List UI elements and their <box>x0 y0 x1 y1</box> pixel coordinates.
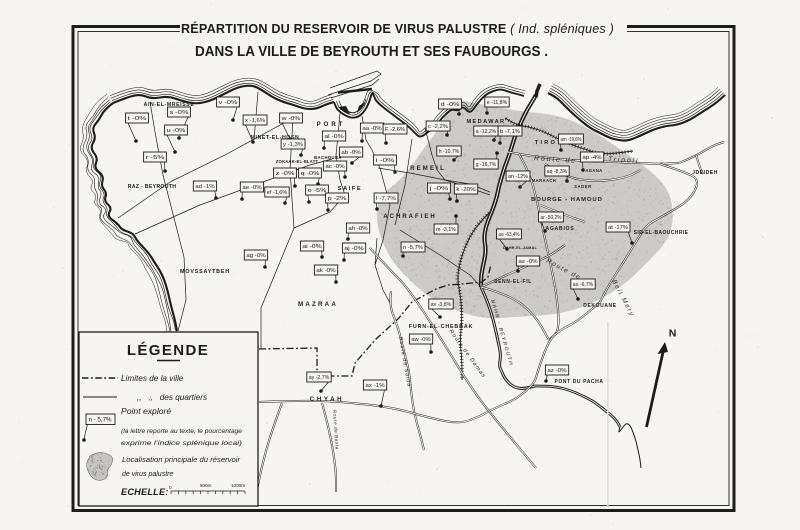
svg-text:ZOKAAK-EL-BLATT: ZOKAAK-EL-BLATT <box>276 159 319 164</box>
svg-text:am -19,6%: am -19,6% <box>561 137 582 143</box>
svg-text:de virus palustre: de virus palustre <box>122 471 173 478</box>
svg-text:MAZRAA: MAZRAA <box>298 301 338 308</box>
svg-text:ae -0%: ae -0% <box>242 185 262 191</box>
svg-text:u -0%: u -0% <box>167 128 186 134</box>
svg-text:DAHR-EL-JAMAL: DAHR-EL-JAMAL <box>503 246 538 250</box>
svg-text:ap -4%: ap -4% <box>582 155 602 161</box>
svg-text:ak -0%: ak -0% <box>316 268 336 274</box>
svg-text:MEDAWAR: MEDAWAR <box>466 119 505 125</box>
svg-text:s -0%: s -0% <box>170 110 189 116</box>
svg-text:TIRO: TIRO <box>535 140 557 146</box>
svg-text:,, ,, des quartiers: ,, ,, des quartiers <box>137 393 207 402</box>
svg-text:ao -63,4%: ao -63,4% <box>499 232 520 238</box>
svg-text:MARAACH: MARAACH <box>532 178 556 183</box>
svg-text:REMEIL: REMEIL <box>410 166 446 172</box>
svg-text:g -16,7%: g -16,7% <box>476 162 497 168</box>
svg-text:Point exploré: Point exploré <box>121 406 171 416</box>
svg-text:PORT: PORT <box>317 122 346 128</box>
svg-text:SAIFE: SAIFE <box>338 186 362 192</box>
svg-text:z -0%: z -0% <box>276 171 295 177</box>
svg-text:DEKOUANE: DEKOUANE <box>583 303 616 309</box>
svg-text:w -0%: w -0% <box>282 116 301 122</box>
svg-text:ad -1%: ad -1% <box>195 184 215 190</box>
svg-text:exprime l’indice splénique loc: exprime l’indice splénique local) <box>121 440 242 447</box>
svg-text:ar -50,2%: ar -50,2% <box>541 215 562 221</box>
svg-text:AIN-EL-MREISSE: AIN-EL-MREISSE <box>144 102 195 108</box>
svg-text:d -0%: d -0% <box>441 102 460 108</box>
svg-text:al -0%: al -0% <box>324 134 344 140</box>
svg-text:ab -0%: ab -0% <box>341 150 361 156</box>
svg-text:N: N <box>669 328 677 340</box>
svg-text:BOURGE - HAMOUD: BOURGE - HAMOUD <box>531 197 603 203</box>
svg-text:FURN-EL-CHEBBAK: FURN-EL-CHEBBAK <box>409 324 473 330</box>
svg-text:az -0%: az -0% <box>547 368 567 374</box>
svg-text:as -0%: as -0% <box>518 259 538 265</box>
svg-text:au -6,7%: au -6,7% <box>573 282 594 288</box>
svg-text:an -12%: an -12% <box>508 174 528 180</box>
svg-text:ac -0%: ac -0% <box>325 164 345 170</box>
svg-text:500m: 500m <box>200 483 212 488</box>
svg-text:c -2,2%: c -2,2% <box>428 124 448 130</box>
svg-text:ay -2,7%: ay -2,7% <box>309 375 330 381</box>
svg-text:SENN-EL-FIL: SENN-EL-FIL <box>494 279 532 285</box>
svg-text:ai -0%: ai -0% <box>302 244 322 250</box>
svg-text:r -5%: r -5% <box>146 155 165 161</box>
svg-text:q -0%: q -0% <box>301 171 320 177</box>
svg-text:n - 5,7%: n - 5,7% <box>88 417 112 424</box>
svg-text:SADER: SADER <box>574 184 592 189</box>
svg-text:i -0%: i -0% <box>376 158 395 164</box>
svg-text:a -12,2%: a -12,2% <box>476 129 497 135</box>
svg-text:ah -0%: ah -0% <box>348 226 368 232</box>
svg-text:x -1,6%: x -1,6% <box>245 118 265 124</box>
svg-text:DANS LA VILLE DE BEYROUTH ET S: DANS LA VILLE DE BEYROUTH ET SES FAUBOUR… <box>195 44 548 60</box>
svg-text:CHYAH: CHYAH <box>310 396 344 403</box>
svg-text:BACHOURA: BACHOURA <box>314 155 342 160</box>
svg-text:t -0%: t -0% <box>128 116 147 122</box>
svg-text:ACHRAFIEH: ACHRAFIEH <box>383 214 436 220</box>
svg-text:F -2,6%: F -2,6% <box>385 127 405 133</box>
svg-text:aa -0%: aa -0% <box>362 126 382 132</box>
svg-text:av -3,8%: av -3,8% <box>431 302 452 308</box>
svg-text:LÉGENDE: LÉGENDE <box>127 342 209 359</box>
svg-text:RAZ - BEYROUTH: RAZ - BEYROUTH <box>128 184 177 190</box>
svg-text:ECHELLE:: ECHELLE: <box>121 487 169 497</box>
svg-text:o -5%: o -5% <box>308 188 327 194</box>
svg-text:JDEIDEH: JDEIDEH <box>692 170 718 176</box>
svg-text:ax -1%: ax -1% <box>365 383 385 389</box>
svg-text:y -1,3%: y -1,3% <box>283 142 303 148</box>
svg-text:aq -8,3%: aq -8,3% <box>547 169 568 175</box>
svg-text:aw -0%: aw -0% <box>411 337 431 343</box>
svg-text:ef -1,6%: ef -1,6% <box>267 190 288 196</box>
svg-text:p -2%: p -2% <box>328 196 347 202</box>
svg-text:AGANA: AGANA <box>585 168 602 173</box>
svg-text:SID-EL-BAOUCHRIE: SID-EL-BAOUCHRIE <box>634 230 689 236</box>
svg-text:Limites de la ville: Limites de la ville <box>121 374 184 383</box>
svg-text:h -10,7%: h -10,7% <box>439 149 460 155</box>
svg-text:n -5,7%: n -5,7% <box>403 245 423 251</box>
svg-text:MOVSSAYTBEH: MOVSSAYTBEH <box>180 269 230 275</box>
svg-text:l -7,7%: l -7,7% <box>376 196 396 202</box>
svg-text:j -0%: j -0% <box>428 186 449 192</box>
svg-text:ag -0%: ag -0% <box>246 253 266 259</box>
svg-text:b -7,1%: b -7,1% <box>500 129 520 135</box>
svg-text:k -20%: k -20% <box>456 187 476 193</box>
svg-text:e -11,8%: e -11,8% <box>487 100 508 106</box>
svg-text:aj -0%: aj -0% <box>344 246 364 252</box>
svg-text:(la lettre reporte au texte, l: (la lettre reporte au texte, le pourcent… <box>121 428 242 435</box>
svg-text:at -17%: at -17% <box>608 225 628 231</box>
svg-text:Localisation principale du rés: Localisation principale du réservoir <box>122 457 241 464</box>
svg-text:AGABIOS: AGABIOS <box>546 226 575 232</box>
svg-text:1000m: 1000m <box>231 483 245 488</box>
svg-text:m -3,1%: m -3,1% <box>436 227 456 233</box>
svg-text:MINET-EL-HOSN: MINET-EL-HOSN <box>251 135 300 141</box>
svg-text:v -0%: v -0% <box>219 100 238 106</box>
svg-text:0: 0 <box>169 485 172 490</box>
svg-text:RÉPARTITION DU RESERVOIR DE VI: RÉPARTITION DU RESERVOIR DE VIRUS PALUST… <box>181 21 614 36</box>
svg-text:PONT DU PACHA: PONT DU PACHA <box>554 379 603 385</box>
